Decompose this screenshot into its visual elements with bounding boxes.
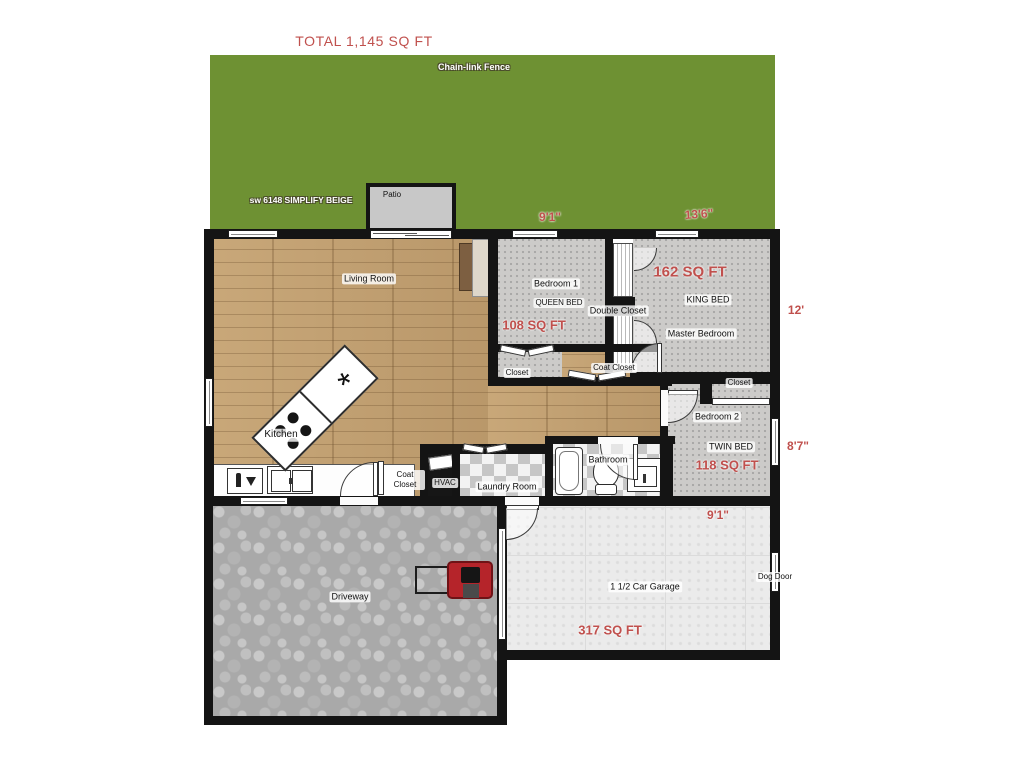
master-depth-dim: 12' bbox=[788, 303, 804, 317]
driveway-label: Driveway bbox=[329, 591, 370, 602]
wall-left bbox=[204, 229, 214, 506]
wall-bedroom2-closet-chunk bbox=[700, 372, 712, 404]
backyard bbox=[210, 55, 775, 232]
window-bedroom1 bbox=[512, 230, 558, 238]
bedroom1-label: Bedroom 1 bbox=[532, 278, 580, 289]
bedroom2-label: Bedroom 2 bbox=[693, 411, 741, 422]
mower-engine bbox=[461, 567, 480, 583]
patio-label: Patio bbox=[381, 190, 403, 200]
plan-title: TOTAL 1,145 SQ FT bbox=[295, 33, 433, 49]
patio bbox=[366, 183, 456, 232]
garage-door bbox=[498, 528, 506, 640]
wall-driveway-left bbox=[204, 506, 213, 725]
garage-width-dim: 9'1" bbox=[707, 508, 729, 522]
bedroom1-area: 108 SQ FT bbox=[502, 318, 566, 333]
paint-label: sw 6148 SIMPLIFY BEIGE bbox=[250, 195, 353, 205]
bedroom2-door-opening bbox=[661, 390, 668, 426]
toilet-tank bbox=[595, 484, 617, 495]
bedroom2-closet-label: Closet bbox=[726, 378, 753, 388]
wall-driveway-bottom bbox=[204, 716, 506, 725]
master-width-dim: 13'6" bbox=[684, 206, 713, 222]
fireplace-mantel bbox=[472, 239, 489, 297]
master-bed-label: KING BED bbox=[684, 294, 731, 305]
dishwasher-icon bbox=[236, 473, 241, 487]
vanity-faucet bbox=[643, 474, 646, 483]
living-room-label: Living Room bbox=[342, 273, 396, 284]
wall-bath-right bbox=[665, 436, 673, 496]
coat-closet-entry-door bbox=[378, 461, 384, 495]
bathtub-basin bbox=[559, 451, 579, 491]
double-closet-shelf-top bbox=[613, 243, 633, 297]
dishwasher-icon-glass bbox=[246, 477, 256, 486]
mower-bag bbox=[463, 584, 479, 598]
coat-closet-entry-label: Coat Closet bbox=[385, 470, 425, 490]
sink-basin-right bbox=[292, 470, 312, 492]
master-label: Master Bedroom bbox=[666, 328, 737, 339]
dog-door-label: Dog Door bbox=[756, 572, 794, 582]
sink-basin-left bbox=[271, 470, 291, 492]
bathroom-label: Bathroom bbox=[586, 454, 629, 465]
garage-entry-opening bbox=[505, 497, 539, 505]
bedroom2-depth-dim: 8'7" bbox=[787, 439, 809, 453]
lawn-mower-body bbox=[447, 561, 493, 599]
window-bedroom2 bbox=[771, 418, 779, 466]
wall-bottom-main bbox=[204, 496, 780, 506]
garage-label: 1 1/2 Car Garage bbox=[608, 581, 682, 592]
kitchen-label: Kitchen bbox=[262, 429, 299, 442]
burner-icon bbox=[298, 422, 314, 438]
burner-icon bbox=[285, 409, 301, 425]
master-door-leaf bbox=[657, 343, 662, 373]
bathroom-door-opening bbox=[598, 437, 638, 444]
wall-bedroom1-left bbox=[488, 229, 498, 385]
wall-hvac-right bbox=[452, 444, 460, 496]
lawn-mower-handle bbox=[415, 566, 449, 594]
bedroom2-area: 118 SQ FT bbox=[696, 458, 759, 473]
bedroom2-bed-label: TWIN BED bbox=[707, 441, 755, 452]
bedroom1-bed-label: QUEEN BED bbox=[533, 298, 584, 308]
driveway-surface bbox=[211, 504, 499, 718]
window-living-left bbox=[205, 378, 213, 427]
bathtub bbox=[555, 447, 583, 495]
floor-plan: * bbox=[0, 0, 1024, 768]
kitchen-sink bbox=[267, 466, 313, 494]
hvac-label: HVAC bbox=[432, 478, 458, 488]
coat-closet-hall-label: Coat Closet bbox=[591, 363, 637, 373]
master-area: 162 SQ FT bbox=[653, 264, 726, 281]
wall-garage-bottom bbox=[497, 650, 780, 660]
window-top-left bbox=[228, 230, 278, 238]
garage-area: 317 SQ FT bbox=[578, 623, 642, 638]
window-living-bottom bbox=[240, 497, 288, 505]
fence-label: Chain-link Fence bbox=[438, 62, 510, 72]
bedroom2-closet-door bbox=[712, 398, 770, 405]
bedroom1-closet-label: Closet bbox=[504, 368, 531, 378]
window-master bbox=[655, 230, 699, 238]
sink-faucet-dot bbox=[289, 478, 293, 484]
dishwasher bbox=[227, 468, 263, 494]
bedroom1-width-dim: 9'1" bbox=[539, 210, 561, 224]
bathroom-door-leaf bbox=[633, 444, 638, 480]
double-closet-label: Double Closet bbox=[588, 305, 649, 316]
patio-sliding-door bbox=[370, 230, 452, 239]
laundry-label: Laundry Room bbox=[475, 481, 538, 492]
front-door-opening bbox=[340, 497, 378, 505]
